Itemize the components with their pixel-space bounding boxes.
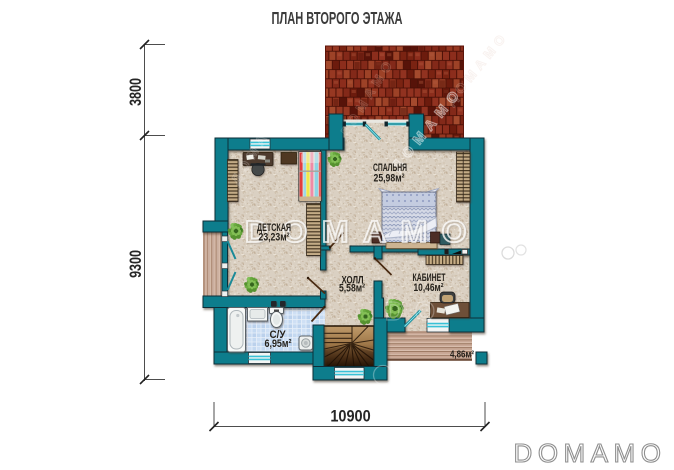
svg-text:10900: 10900 (330, 408, 370, 426)
svg-text:5,58м²: 5,58м² (339, 283, 365, 295)
svg-text:23,23м²: 23,23м² (259, 232, 290, 244)
svg-text:25,98м²: 25,98м² (374, 173, 405, 185)
svg-text:3800: 3800 (127, 78, 145, 106)
svg-text:6,95м²: 6,95м² (265, 338, 292, 350)
svg-text:4,86м²: 4,86м² (450, 349, 474, 361)
svg-text:DO: DO (385, 296, 446, 326)
svg-text:9300: 9300 (127, 250, 145, 278)
svg-text:10,46м²: 10,46м² (414, 282, 444, 294)
svg-text:ПЛАН ВТОРОГО ЭТАЖА: ПЛАН ВТОРОГО ЭТАЖА (271, 8, 402, 28)
svg-text:DOMAMO: DOMAMO (514, 438, 667, 468)
